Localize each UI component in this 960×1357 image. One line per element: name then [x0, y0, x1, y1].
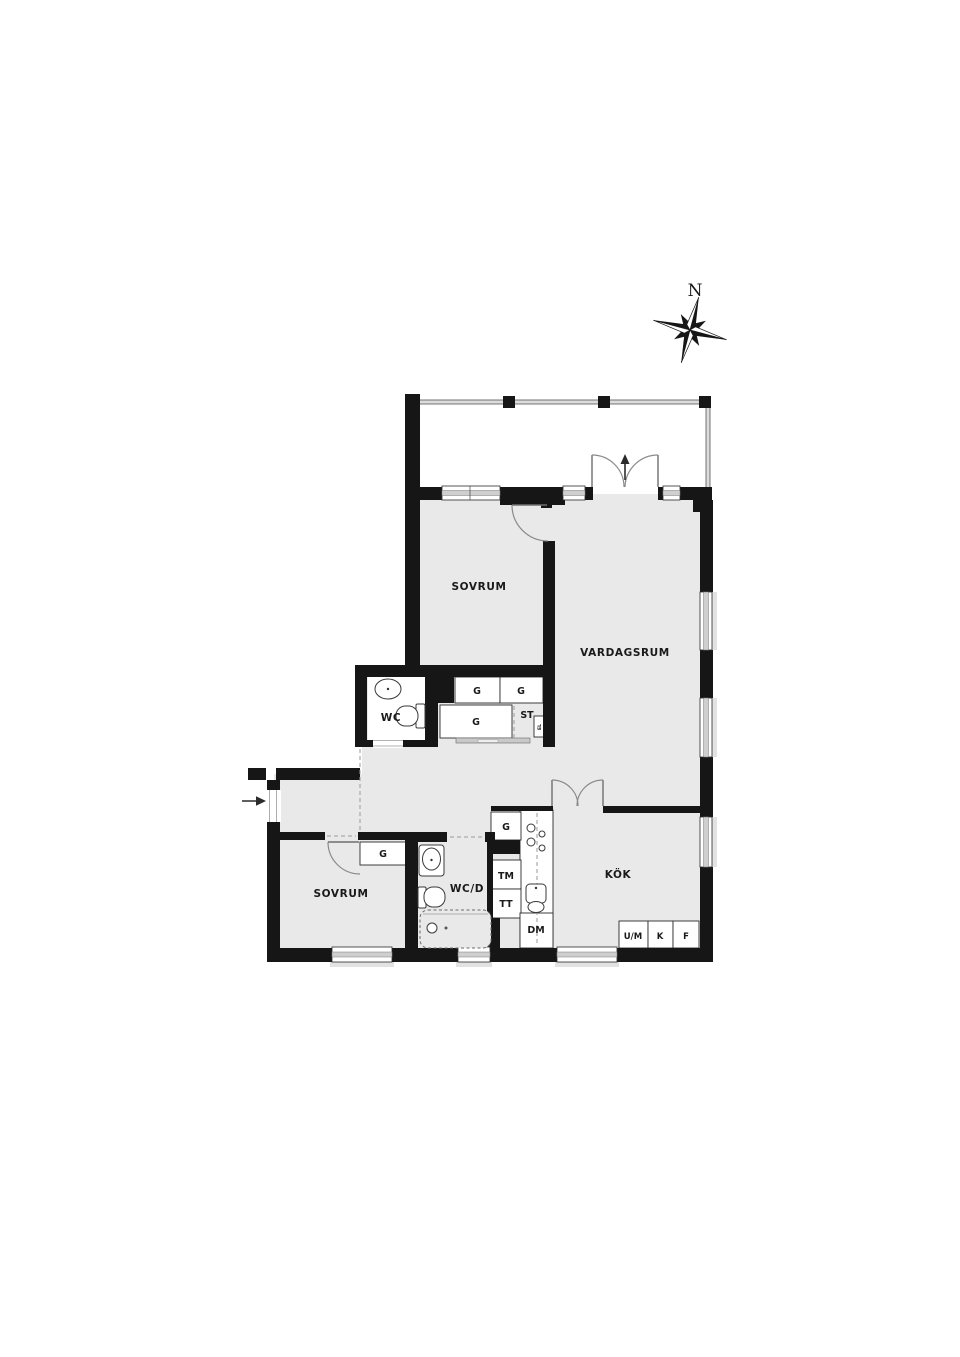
wall-segment [490, 948, 557, 962]
wall-segment [392, 948, 458, 962]
wall-segment [418, 832, 447, 842]
wall-segment [700, 500, 713, 592]
label-closet-st: ST [520, 710, 534, 721]
compass-north-label: N [688, 281, 703, 301]
wall-segment [585, 487, 593, 500]
compass-rose: N [644, 281, 735, 373]
wcd-door [447, 831, 485, 843]
wall-segment [405, 394, 420, 677]
room-label-sovrum-lower: SOVRUM [314, 888, 369, 900]
room-label-wc: WC [381, 712, 402, 724]
wall-segment [405, 832, 418, 948]
wall-segment [355, 665, 555, 677]
balcony [418, 396, 711, 489]
window [555, 947, 619, 967]
wall-segment [276, 768, 360, 780]
label-electrical: EL [537, 724, 543, 730]
balcony-column [503, 396, 515, 408]
label-wardrobe: G [473, 686, 481, 697]
wall-segment [248, 768, 266, 780]
wcd-toilet [418, 887, 445, 908]
window [700, 592, 717, 650]
wall-segment [543, 541, 555, 675]
wall-segment [267, 832, 325, 840]
balcony-column [598, 396, 610, 408]
floor-plan-drawing: SOVRUM VARDAGSRUM WC SOVRUM WC/D KÖK G G… [0, 0, 960, 1357]
wall-segment [425, 677, 438, 740]
wc-sink [375, 679, 401, 699]
floor-plan-page: SOVRUM VARDAGSRUM WC SOVRUM WC/D KÖK G G… [0, 0, 960, 1357]
window [700, 817, 717, 867]
wall-segment [438, 677, 454, 703]
entry-door [242, 790, 281, 822]
label-dryer: TT [499, 899, 513, 910]
window [456, 947, 492, 967]
wall-segment [700, 757, 713, 817]
wall-segment [617, 948, 712, 962]
wall-segment [700, 650, 713, 698]
label-bedroom-wardrobe: G [379, 849, 387, 860]
window [442, 486, 500, 500]
wall-segment [267, 822, 280, 948]
wall-segment [405, 487, 442, 500]
balcony-railing-top [418, 400, 709, 404]
window [663, 486, 680, 500]
room-label-vardagsrum: VARDAGSRUM [580, 647, 670, 659]
wall-segment [603, 806, 703, 813]
label-dishwasher: DM [527, 925, 544, 936]
wcd-sink [419, 845, 444, 876]
wall-segment [267, 948, 332, 962]
window [563, 486, 585, 500]
kitchen-sink [526, 884, 546, 913]
balcony-french-doors [592, 454, 658, 487]
bathtub [420, 910, 491, 948]
label-oven-microwave: U/M [624, 932, 642, 942]
label-kitchen-wardrobe: G [502, 822, 510, 833]
label-fridge: K [657, 932, 664, 942]
wall-segment [355, 740, 373, 747]
wall-segment [500, 487, 565, 505]
room-label-kok: KÖK [605, 867, 632, 881]
sliding-door-handle [478, 740, 498, 743]
wall-segment [700, 867, 713, 962]
wall-segment [358, 832, 407, 840]
label-freezer: F [683, 932, 689, 942]
wall-segment [543, 675, 555, 747]
balcony-railing-right [706, 400, 710, 489]
window [700, 698, 717, 757]
wall-segment [403, 740, 438, 747]
wall-segment [267, 780, 280, 790]
wall-segment [355, 665, 367, 747]
wc-door [373, 739, 403, 748]
label-wardrobe: G [517, 686, 525, 697]
room-label-wcd: WC/D [450, 883, 484, 895]
window [330, 947, 394, 967]
label-hall-wardrobe: G [472, 717, 480, 728]
wall-segment [491, 806, 553, 811]
balcony-column [699, 396, 711, 408]
wall-segment [541, 499, 552, 508]
wall-segment [487, 840, 520, 854]
wall-segment [658, 487, 663, 500]
room-label-sovrum-upper: SOVRUM [452, 581, 507, 593]
label-washing-machine: TM [498, 871, 514, 882]
